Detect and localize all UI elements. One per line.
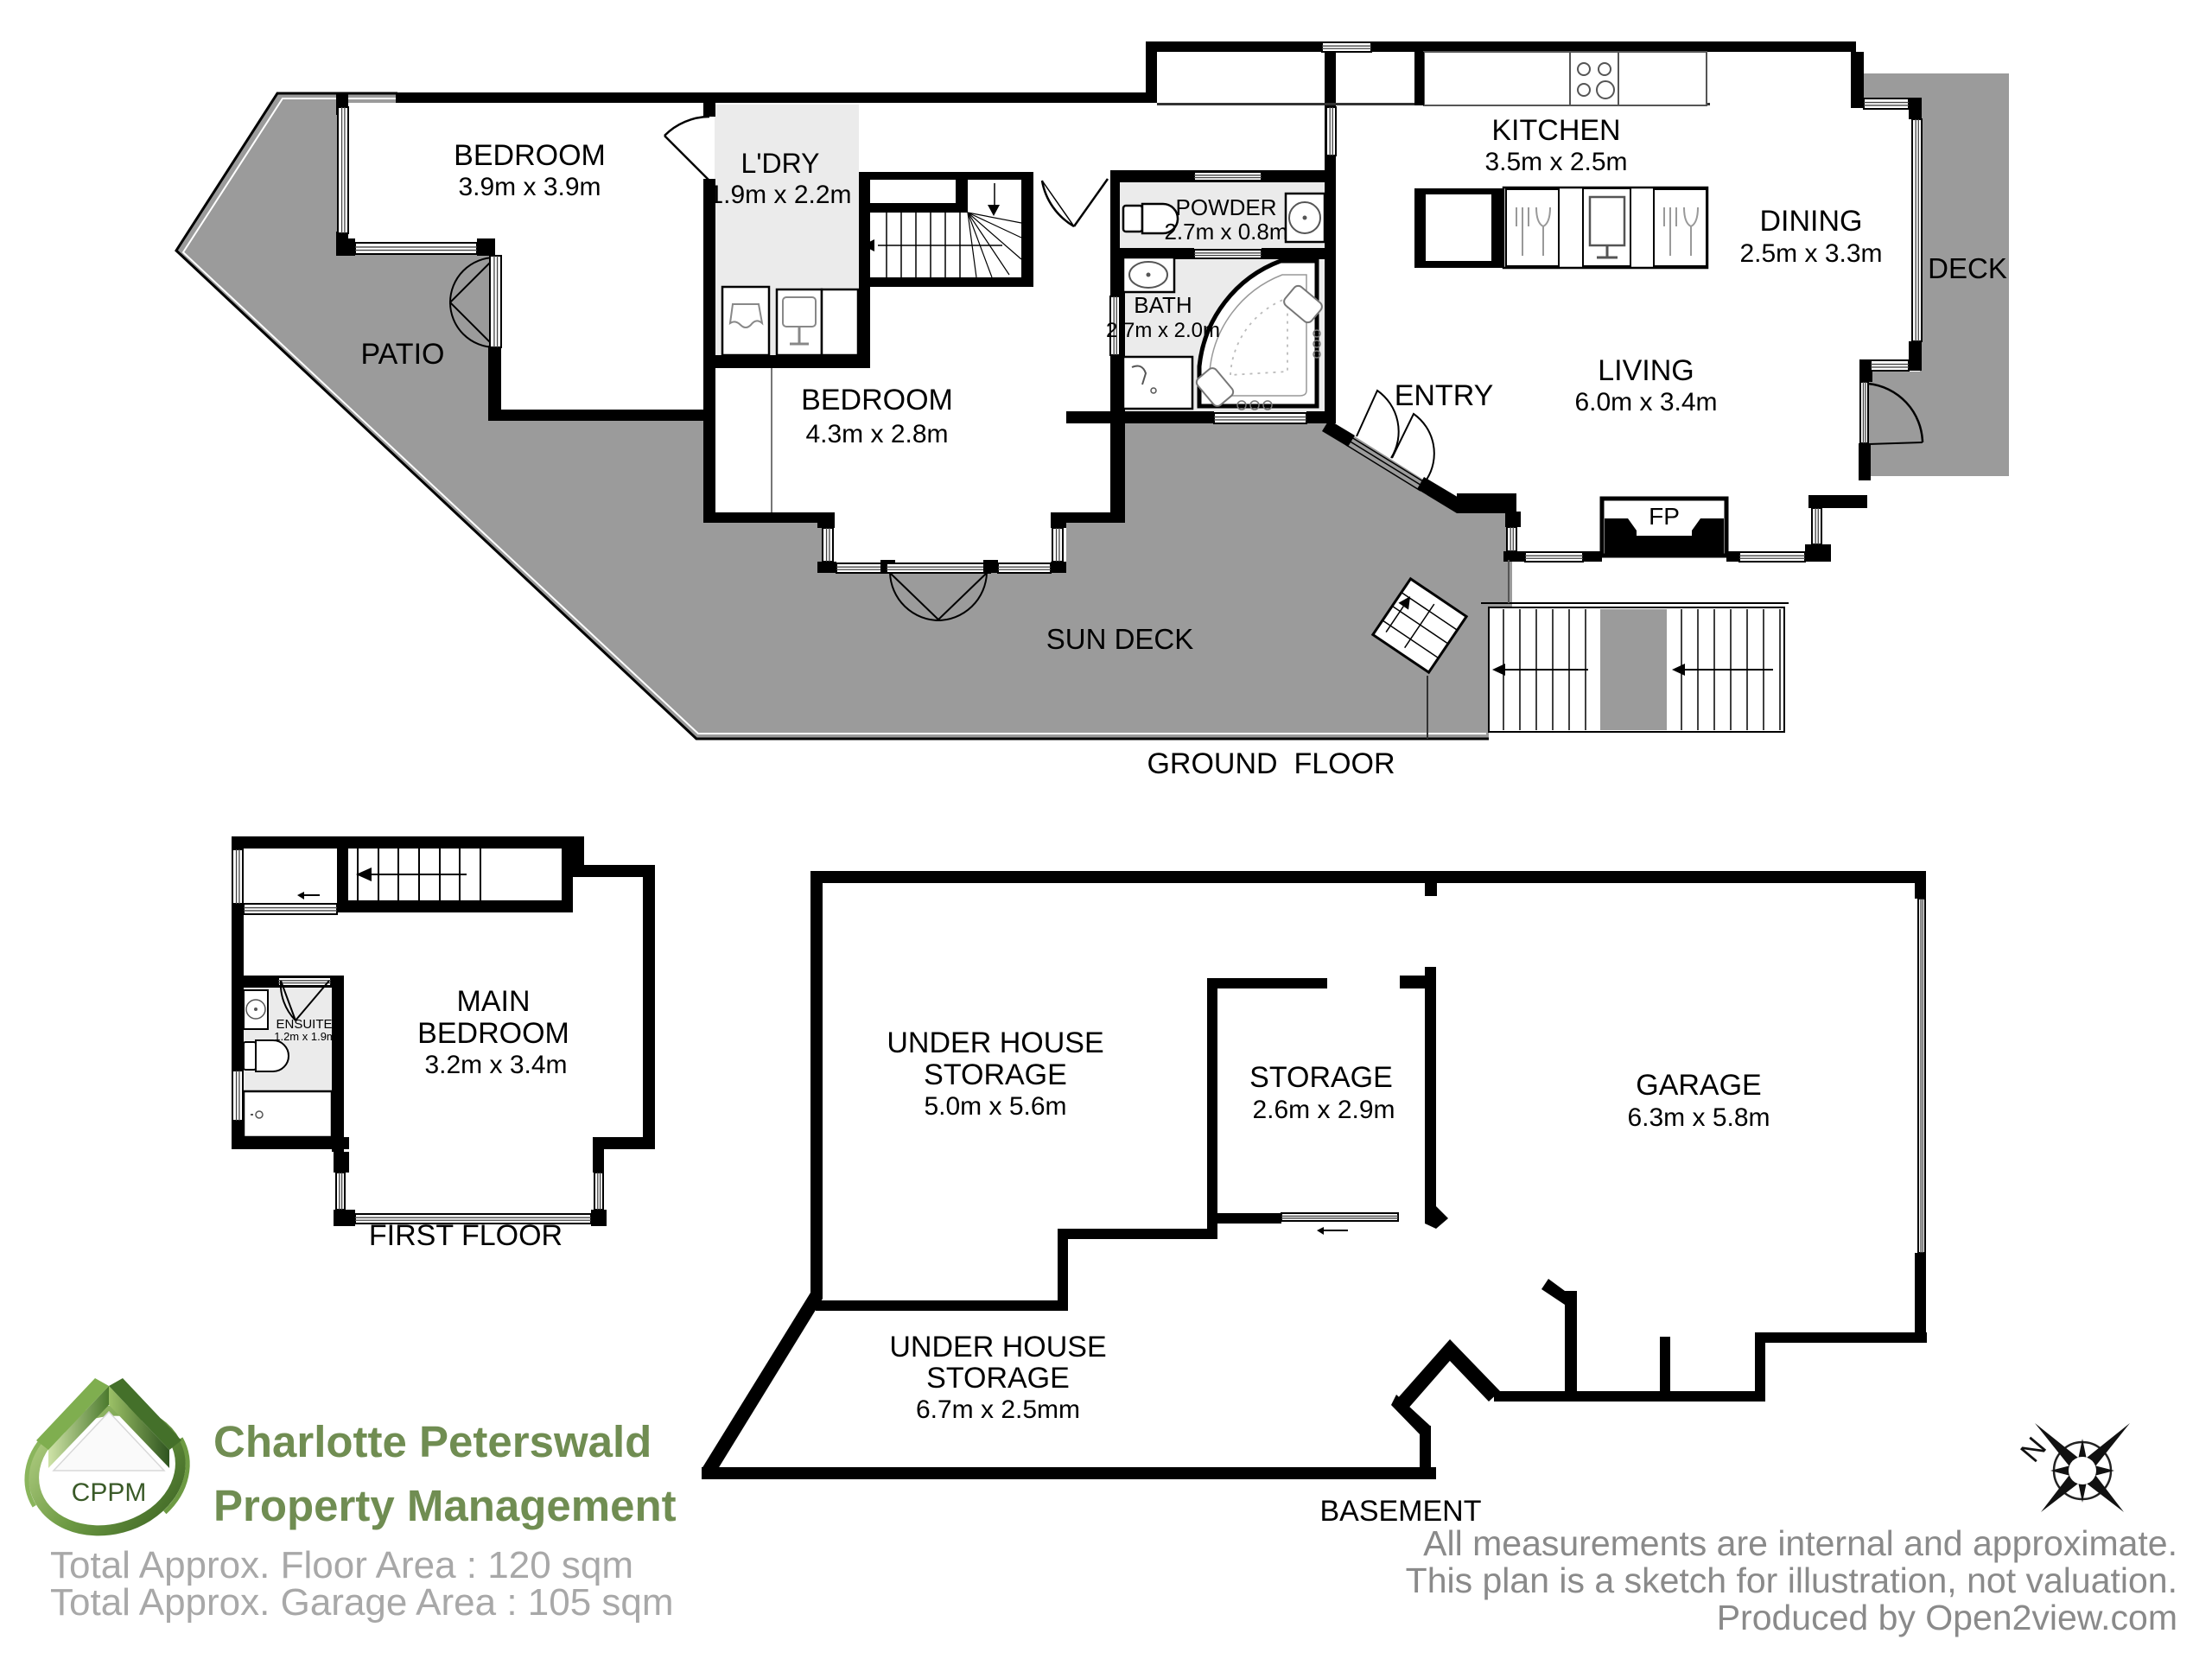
svg-text:UNDER HOUSE: UNDER HOUSE — [889, 1331, 1106, 1363]
svg-text:BEDROOM: BEDROOM — [801, 384, 953, 416]
svg-text:1.9m x 2.2m: 1.9m x 2.2m — [709, 181, 851, 209]
svg-text:6.0m x 3.4m: 6.0m x 3.4m — [1574, 388, 1717, 416]
svg-text:MAIN: MAIN — [457, 985, 531, 1018]
svg-text:GARAGE: GARAGE — [1636, 1069, 1761, 1102]
svg-text:FP: FP — [1649, 503, 1680, 530]
svg-text:DINING: DINING — [1760, 205, 1863, 238]
svg-text:6.7m x 2.5mm: 6.7m x 2.5mm — [916, 1395, 1080, 1424]
svg-text:Produced by Open2view.com: Produced by Open2view.com — [1717, 1598, 2177, 1637]
svg-text:6.3m x 5.8m: 6.3m x 5.8m — [1627, 1103, 1770, 1132]
svg-text:STORAGE: STORAGE — [1249, 1061, 1393, 1094]
svg-text:All measurements are internal: All measurements are internal and approx… — [1423, 1523, 2177, 1563]
svg-text:LIVING: LIVING — [1598, 354, 1694, 387]
svg-text:PATIO: PATIO — [361, 338, 445, 371]
svg-text:2.7m x 0.8m: 2.7m x 0.8m — [1164, 219, 1287, 245]
svg-text:POWDER: POWDER — [1176, 194, 1277, 220]
svg-text:BEDROOM: BEDROOM — [454, 139, 606, 172]
svg-text:L'DRY: L'DRY — [741, 148, 820, 179]
svg-text:BEDROOM: BEDROOM — [417, 1017, 569, 1050]
svg-text:2.7m x 2.0m: 2.7m x 2.0m — [1106, 319, 1220, 342]
svg-text:Charlotte Peterswald: Charlotte Peterswald — [213, 1417, 652, 1466]
svg-text:5.0m x 5.6m: 5.0m x 5.6m — [924, 1092, 1066, 1121]
svg-text:2.6m x 2.9m: 2.6m x 2.9m — [1252, 1096, 1395, 1124]
svg-text:BATH: BATH — [1134, 292, 1192, 318]
svg-text:CPPM: CPPM — [72, 1478, 147, 1507]
svg-text:ENTRY: ENTRY — [1395, 379, 1494, 412]
svg-text:Total Approx. Floor Area : 120: Total Approx. Floor Area : 120 sqm — [50, 1544, 633, 1586]
svg-text:SUN DECK: SUN DECK — [1046, 623, 1194, 655]
svg-text:Total Approx. Garage Area : 10: Total Approx. Garage Area : 105 sqm — [50, 1581, 674, 1624]
svg-text:This plan is a sketch for illu: This plan is a sketch for illustration, … — [1406, 1560, 2177, 1600]
svg-text:DECK: DECK — [1928, 252, 2007, 284]
svg-text:3.5m x 2.5m: 3.5m x 2.5m — [1484, 148, 1627, 176]
svg-text:KITCHEN: KITCHEN — [1491, 114, 1620, 147]
svg-text:Property Management: Property Management — [213, 1481, 677, 1530]
svg-text:1.2m x 1.9m: 1.2m x 1.9m — [274, 1030, 336, 1043]
svg-text:FIRST FLOOR: FIRST FLOOR — [369, 1219, 563, 1252]
svg-text:4.3m x 2.8m: 4.3m x 2.8m — [805, 420, 948, 448]
svg-text:STORAGE: STORAGE — [926, 1362, 1070, 1395]
svg-text:2.5m x 3.3m: 2.5m x 3.3m — [1739, 239, 1882, 268]
svg-text:GROUND FLOOR: GROUND FLOOR — [1147, 747, 1395, 780]
svg-text:3.2m x 3.4m: 3.2m x 3.4m — [424, 1051, 567, 1079]
svg-text:STORAGE: STORAGE — [924, 1058, 1067, 1091]
svg-text:3.9m x 3.9m: 3.9m x 3.9m — [458, 173, 601, 201]
svg-text:UNDER HOUSE: UNDER HOUSE — [887, 1027, 1103, 1059]
